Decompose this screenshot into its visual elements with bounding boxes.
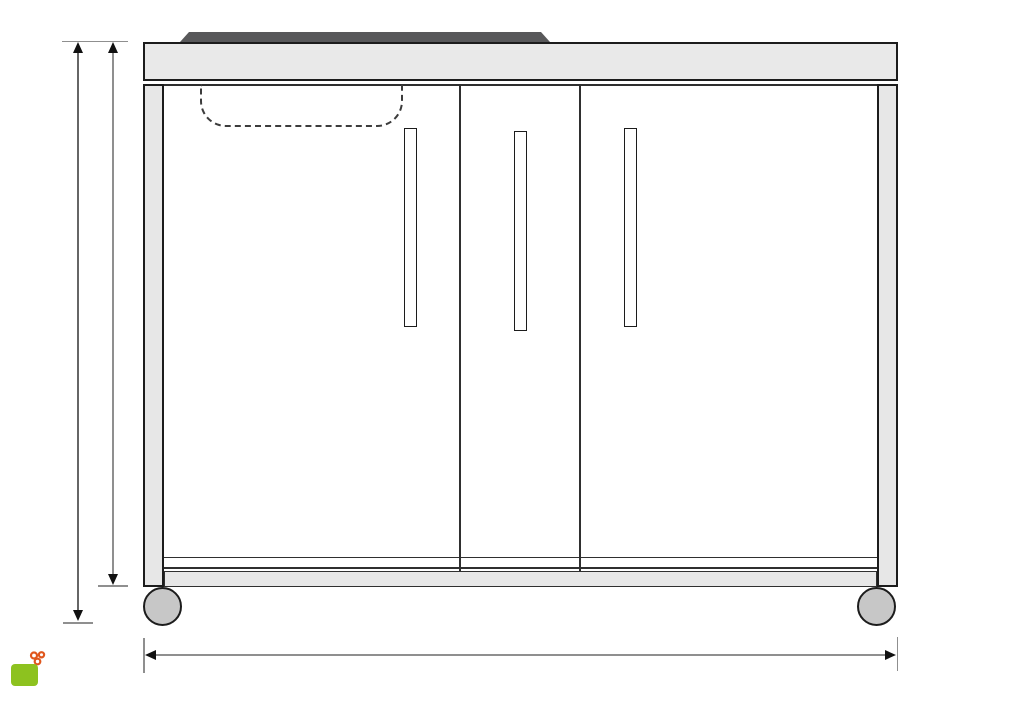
- dim-arrow-98-bottom: [73, 610, 83, 621]
- door-bottom-rail-line: [164, 557, 877, 559]
- side-panel-right: [877, 84, 898, 587]
- cooktop-strip: [180, 32, 550, 42]
- sink-outline-dashed: [200, 84, 403, 127]
- dim-line-92: [112, 44, 114, 583]
- dim-arrow-92-top: [108, 42, 118, 53]
- diagram-canvas: [0, 0, 1024, 705]
- dim-tick-98-bottom: [63, 622, 93, 624]
- dim-arrow-92-bottom: [108, 574, 118, 585]
- dim-arrow-98-top: [73, 42, 83, 53]
- side-panel-left: [143, 84, 164, 587]
- dim-tick-92-bottom: [98, 585, 128, 587]
- brand-logo: [11, 650, 141, 696]
- door-handle-left: [404, 128, 417, 327]
- caster-wheel-right: [857, 587, 896, 626]
- dim-line-98: [77, 44, 79, 619]
- door-divider-right: [579, 84, 581, 571]
- dim-arrow-127-left: [145, 650, 156, 660]
- dim-arrow-127-right: [885, 650, 896, 660]
- door-handle-middle: [514, 131, 527, 331]
- door-handle-right: [624, 128, 637, 327]
- door-divider-left: [459, 84, 461, 571]
- dim-ext-right: [897, 637, 899, 671]
- door-bottom-edge: [164, 567, 877, 569]
- plinth: [164, 571, 877, 587]
- logo-monogram-square: [11, 664, 38, 686]
- countertop: [143, 42, 898, 81]
- dim-line-127: [147, 654, 894, 656]
- caster-wheel-left: [143, 587, 182, 626]
